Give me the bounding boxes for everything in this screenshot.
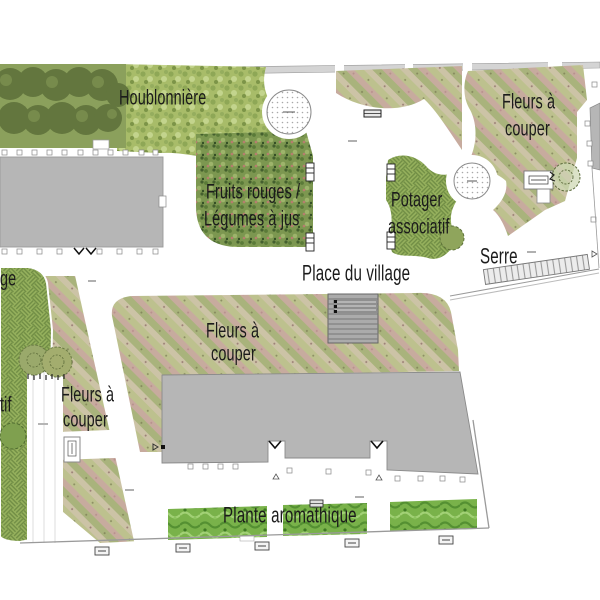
label-fleurs-tr-line1: Fleurs à (502, 92, 555, 113)
label-fleurs-center-line2: couper (211, 344, 256, 365)
label-fleurs-left-line2: couper (63, 410, 108, 431)
label-serre: Serre (480, 246, 518, 268)
label-cut-bottom: tif (0, 395, 12, 416)
bench (364, 110, 381, 117)
label-fleurs-tr-line2: couper (505, 119, 550, 140)
serre-greenhouse (450, 254, 599, 300)
label-cut-top: ge (0, 269, 16, 290)
label-potager-line2: associatif (388, 217, 449, 238)
tree-planter-circle (262, 85, 316, 139)
tree-planter-circle (446, 155, 498, 207)
label-fleurs-left-line1: Fleurs à (61, 385, 114, 406)
tree-row (0, 64, 130, 149)
label-fleurs-center-line1: Fleurs à (206, 321, 259, 342)
label-fruits-line1: Fruits rouges / (206, 182, 300, 203)
kiosk (64, 437, 80, 462)
label-potager-line1: Potager (391, 190, 442, 211)
label-houblonniere: Houblonnière (119, 88, 206, 109)
plaza-stairs (328, 294, 378, 343)
building-existing (0, 150, 166, 254)
round-shrub (0, 423, 26, 449)
site-plan: Houblonnière Fruits rouges / Légumes à j… (0, 0, 600, 600)
vertical-path (27, 360, 63, 545)
label-plante-aromathique: Plante aromathique (223, 505, 357, 527)
building-main (153, 372, 478, 482)
label-place-du-village: Place du village (302, 263, 410, 285)
label-fruits-line2: Légumes à jus (204, 209, 300, 230)
top-flower-band (336, 66, 462, 150)
